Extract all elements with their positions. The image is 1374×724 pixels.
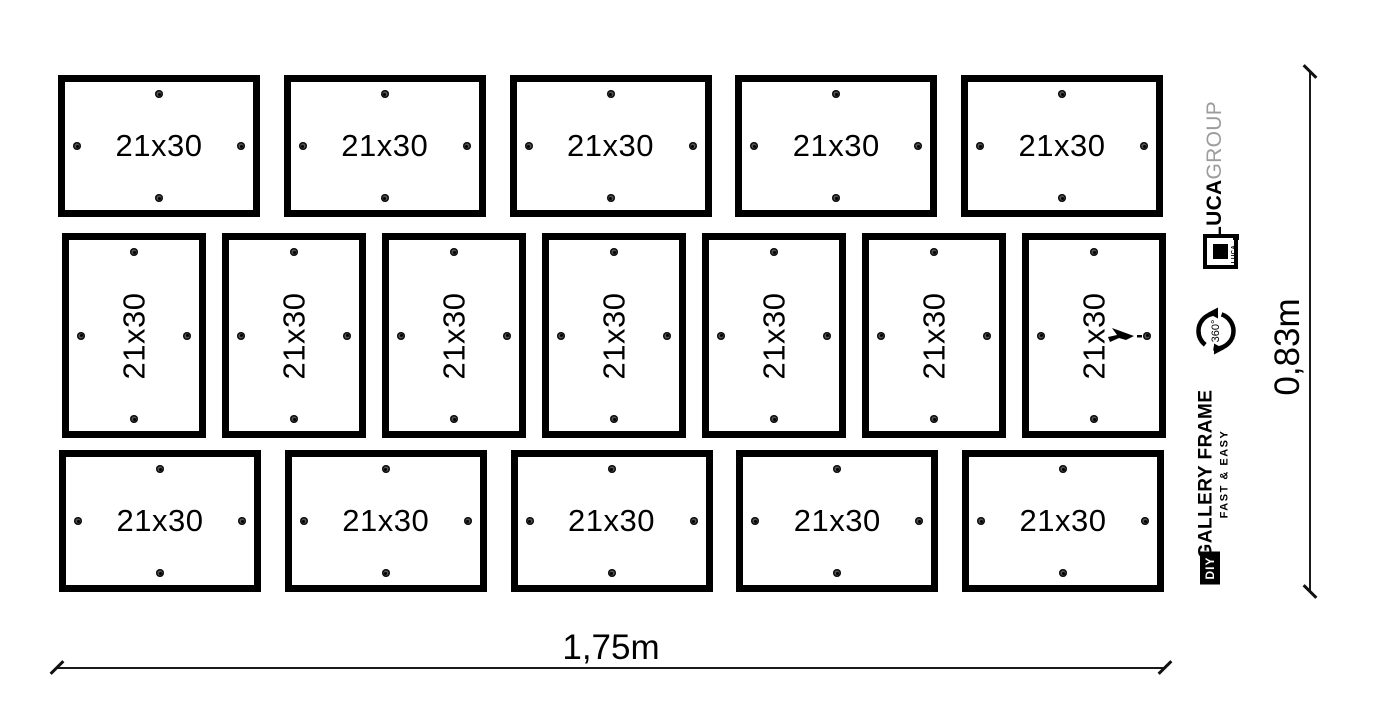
screw-icon — [343, 332, 351, 340]
frame-label: 21x30 — [341, 128, 428, 164]
screw-icon — [237, 332, 245, 340]
group-wordmark-light: GROUP — [1203, 101, 1226, 180]
screw-icon — [689, 142, 697, 150]
middle-row: 21x30 21x30 21x30 — [62, 233, 1166, 438]
picture-frame: 21x30 — [511, 450, 713, 592]
screw-icon — [1090, 248, 1098, 256]
screw-icon — [832, 194, 840, 202]
frame-label: 21x30 — [793, 128, 880, 164]
picture-frame: 21x30 — [702, 233, 846, 438]
screw-icon — [1141, 517, 1149, 525]
screw-icon — [381, 194, 389, 202]
screw-icon — [833, 465, 841, 473]
screw-icon — [832, 90, 840, 98]
screw-icon — [877, 332, 885, 340]
height-dimension-line — [1309, 72, 1311, 592]
screw-icon — [1037, 332, 1045, 340]
picture-frame: 21x30 — [735, 75, 937, 217]
screw-icon — [1058, 90, 1066, 98]
gallery-frame-title: GALLERY FRAME — [1196, 389, 1218, 558]
screw-icon — [450, 248, 458, 256]
screw-icon — [299, 142, 307, 150]
screw-icon — [525, 142, 533, 150]
screw-icon — [983, 332, 991, 340]
screw-icon — [607, 90, 615, 98]
frame-label: 21x30 — [436, 292, 472, 379]
screw-icon — [300, 517, 308, 525]
frame-label: 21x30 — [276, 292, 312, 379]
screw-icon — [156, 465, 164, 473]
picture-frame: 21x30 — [284, 75, 486, 217]
screw-icon — [130, 415, 138, 423]
picture-frame: 21x30 — [542, 233, 686, 438]
screw-icon — [290, 415, 298, 423]
screw-icon — [823, 332, 831, 340]
luca-logo-caption: LUCA — [1232, 245, 1238, 264]
screw-icon — [930, 248, 938, 256]
frame-label: 21x30 — [596, 292, 632, 379]
picture-frame: 21x30 — [382, 233, 526, 438]
screw-icon — [770, 248, 778, 256]
picture-frame: 21x30 — [1022, 233, 1166, 438]
screw-icon — [238, 517, 246, 525]
height-dimension-label: 0,83m — [1268, 298, 1308, 395]
picture-frame: 21x30 — [962, 450, 1164, 592]
gallery-frame-logo: GALLERY FRAME FAST & EASY — [1196, 389, 1231, 558]
screw-icon — [156, 569, 164, 577]
picture-frame: 21x30 — [62, 233, 206, 438]
screw-icon — [155, 194, 163, 202]
top-row: 21x30 21x30 21x30 — [58, 75, 1163, 217]
screw-icon — [1090, 415, 1098, 423]
screw-icon — [976, 142, 984, 150]
screw-icon — [397, 332, 405, 340]
screw-icon — [503, 332, 511, 340]
screw-icon — [130, 248, 138, 256]
screw-icon — [73, 142, 81, 150]
frame-label: 21x30 — [116, 292, 152, 379]
screw-icon — [610, 415, 618, 423]
frame-label: 21x30 — [117, 503, 204, 539]
screw-icon — [770, 415, 778, 423]
rotation-360-icon: 360° — [1191, 306, 1241, 356]
frame-label: 21x30 — [568, 503, 655, 539]
screw-icon — [77, 332, 85, 340]
screw-icon — [914, 142, 922, 150]
luca-logo: LUCA — [1203, 234, 1238, 269]
cursor-icon — [1106, 324, 1144, 348]
screw-icon — [833, 569, 841, 577]
frame-label: 21x30 — [342, 503, 429, 539]
luca-logo-square — [1213, 244, 1228, 259]
width-dimension-label: 1,75m — [541, 628, 681, 668]
screw-icon — [663, 332, 671, 340]
screw-icon — [450, 415, 458, 423]
screw-icon — [1058, 194, 1066, 202]
screw-icon — [183, 332, 191, 340]
rotation-360-label: 360° — [1210, 320, 1222, 343]
picture-frame: 21x30 — [58, 75, 260, 217]
screw-icon — [1140, 142, 1148, 150]
screw-icon — [607, 194, 615, 202]
screw-icon — [915, 517, 923, 525]
frame-label: 21x30 — [916, 292, 952, 379]
screw-icon — [237, 142, 245, 150]
picture-frame: 21x30 — [862, 233, 1006, 438]
screw-icon — [610, 248, 618, 256]
screw-icon — [608, 465, 616, 473]
luca-group-wordmark: LUCAGROUP — [1203, 101, 1227, 239]
screw-icon — [1143, 332, 1151, 340]
frame-label: 21x30 — [1020, 503, 1107, 539]
picture-frame: 21x30 — [510, 75, 712, 217]
screw-icon — [155, 90, 163, 98]
screw-icon — [382, 465, 390, 473]
picture-frame: 21x30 — [222, 233, 366, 438]
screw-icon — [464, 517, 472, 525]
screw-icon — [1059, 465, 1067, 473]
diy-badge: DIY — [1200, 551, 1220, 584]
screw-icon — [751, 517, 759, 525]
picture-frame: 21x30 — [961, 75, 1163, 217]
screw-icon — [74, 517, 82, 525]
screw-icon — [690, 517, 698, 525]
frame-label: 21x30 — [756, 292, 792, 379]
screw-icon — [750, 142, 758, 150]
bottom-row: 21x30 21x30 21x30 — [59, 450, 1164, 595]
gallery-wall-hanging-template: 21x30 21x30 21x30 — [0, 0, 1374, 724]
luca-logo-notch — [1233, 234, 1239, 240]
picture-frame: 21x30 — [285, 450, 487, 592]
picture-frame: 21x30 — [59, 450, 261, 592]
screw-icon — [977, 517, 985, 525]
screw-icon — [1059, 569, 1067, 577]
picture-frame: 21x30 — [736, 450, 938, 592]
frame-label: 21x30 — [1019, 128, 1106, 164]
frame-label: 21x30 — [567, 128, 654, 164]
screw-icon — [463, 142, 471, 150]
screw-icon — [557, 332, 565, 340]
screw-icon — [930, 415, 938, 423]
screw-icon — [382, 569, 390, 577]
luca-wordmark-bold: LUCA — [1203, 179, 1226, 239]
screw-icon — [381, 90, 389, 98]
screw-icon — [608, 569, 616, 577]
gallery-frame-tagline: FAST & EASY — [1219, 389, 1231, 558]
screw-icon — [290, 248, 298, 256]
screw-icon — [526, 517, 534, 525]
frame-label: 21x30 — [794, 503, 881, 539]
screw-icon — [717, 332, 725, 340]
frame-label: 21x30 — [116, 128, 203, 164]
